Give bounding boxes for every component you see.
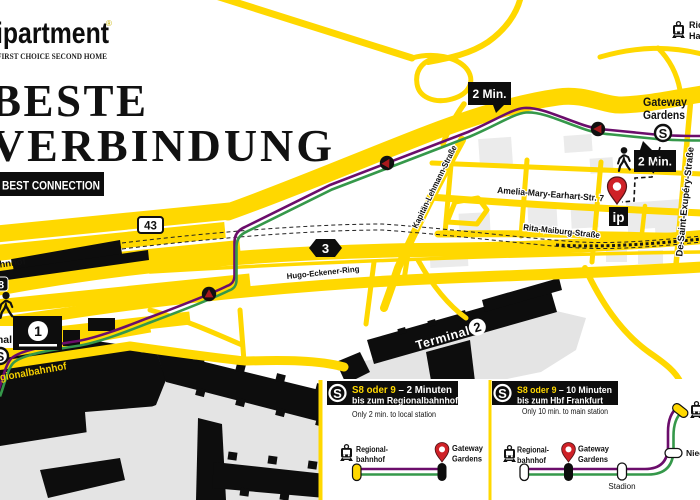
svg-text:Only 2 min. to local station: Only 2 min. to local station — [352, 410, 436, 419]
svg-text:Niederrad: Niederrad — [686, 448, 700, 458]
svg-text:Stadion: Stadion — [608, 482, 635, 491]
svg-text:S: S — [333, 386, 342, 401]
svg-text:Gateway: Gateway — [578, 445, 610, 454]
svg-text:Gateway: Gateway — [643, 97, 688, 109]
svg-text:®: ® — [106, 19, 112, 28]
svg-text:2 Min.: 2 Min. — [472, 87, 506, 101]
svg-text:Terminal: Terminal — [0, 334, 12, 346]
svg-text:Gardens: Gardens — [578, 455, 608, 464]
svg-text:8: 8 — [0, 280, 4, 292]
svg-text:Gardens: Gardens — [452, 455, 482, 464]
svg-text:S: S — [0, 349, 5, 364]
svg-text:bis zum Regionalbahnhof: bis zum Regionalbahnhof — [352, 396, 459, 407]
svg-text:Gardens: Gardens — [643, 110, 685, 122]
svg-text:VERBINDUNG: VERBINDUNG — [0, 120, 332, 171]
svg-text:1: 1 — [34, 323, 42, 339]
svg-text:Regional-: Regional- — [517, 446, 549, 455]
svg-text:Only 10 min. to main station: Only 10 min. to main station — [522, 407, 608, 416]
svg-text:3: 3 — [322, 241, 329, 256]
svg-text:S: S — [498, 386, 507, 401]
svg-text:43: 43 — [144, 221, 157, 233]
svg-text:Regional-: Regional- — [356, 445, 388, 454]
svg-text:2 Min.: 2 Min. — [638, 155, 672, 169]
svg-text:bis zum Hbf Frankfurt: bis zum Hbf Frankfurt — [517, 396, 604, 407]
svg-text:bahnhof: bahnhof — [356, 455, 385, 464]
svg-text:bahnhof: bahnhof — [517, 456, 546, 465]
svg-text:S8 oder 9 – 2 Minuten: S8 oder 9 – 2 Minuten — [352, 385, 452, 396]
svg-text:Richtung: Richtung — [689, 20, 700, 30]
svg-text:FIRST CHOICE SECOND HOME: FIRST CHOICE SECOND HOME — [0, 52, 107, 61]
svg-text:ipartment: ipartment — [0, 17, 109, 50]
svg-text:S8 oder 9 – 10 Minuten: S8 oder 9 – 10 Minuten — [517, 385, 612, 396]
svg-text:ip: ip — [613, 210, 625, 225]
svg-text:Gateway: Gateway — [452, 444, 484, 453]
svg-text:S: S — [659, 126, 668, 141]
svg-text:Hauptbahnhof: Hauptbahnhof — [689, 31, 700, 41]
svg-text:BEST CONNECTION: BEST CONNECTION — [2, 181, 100, 193]
